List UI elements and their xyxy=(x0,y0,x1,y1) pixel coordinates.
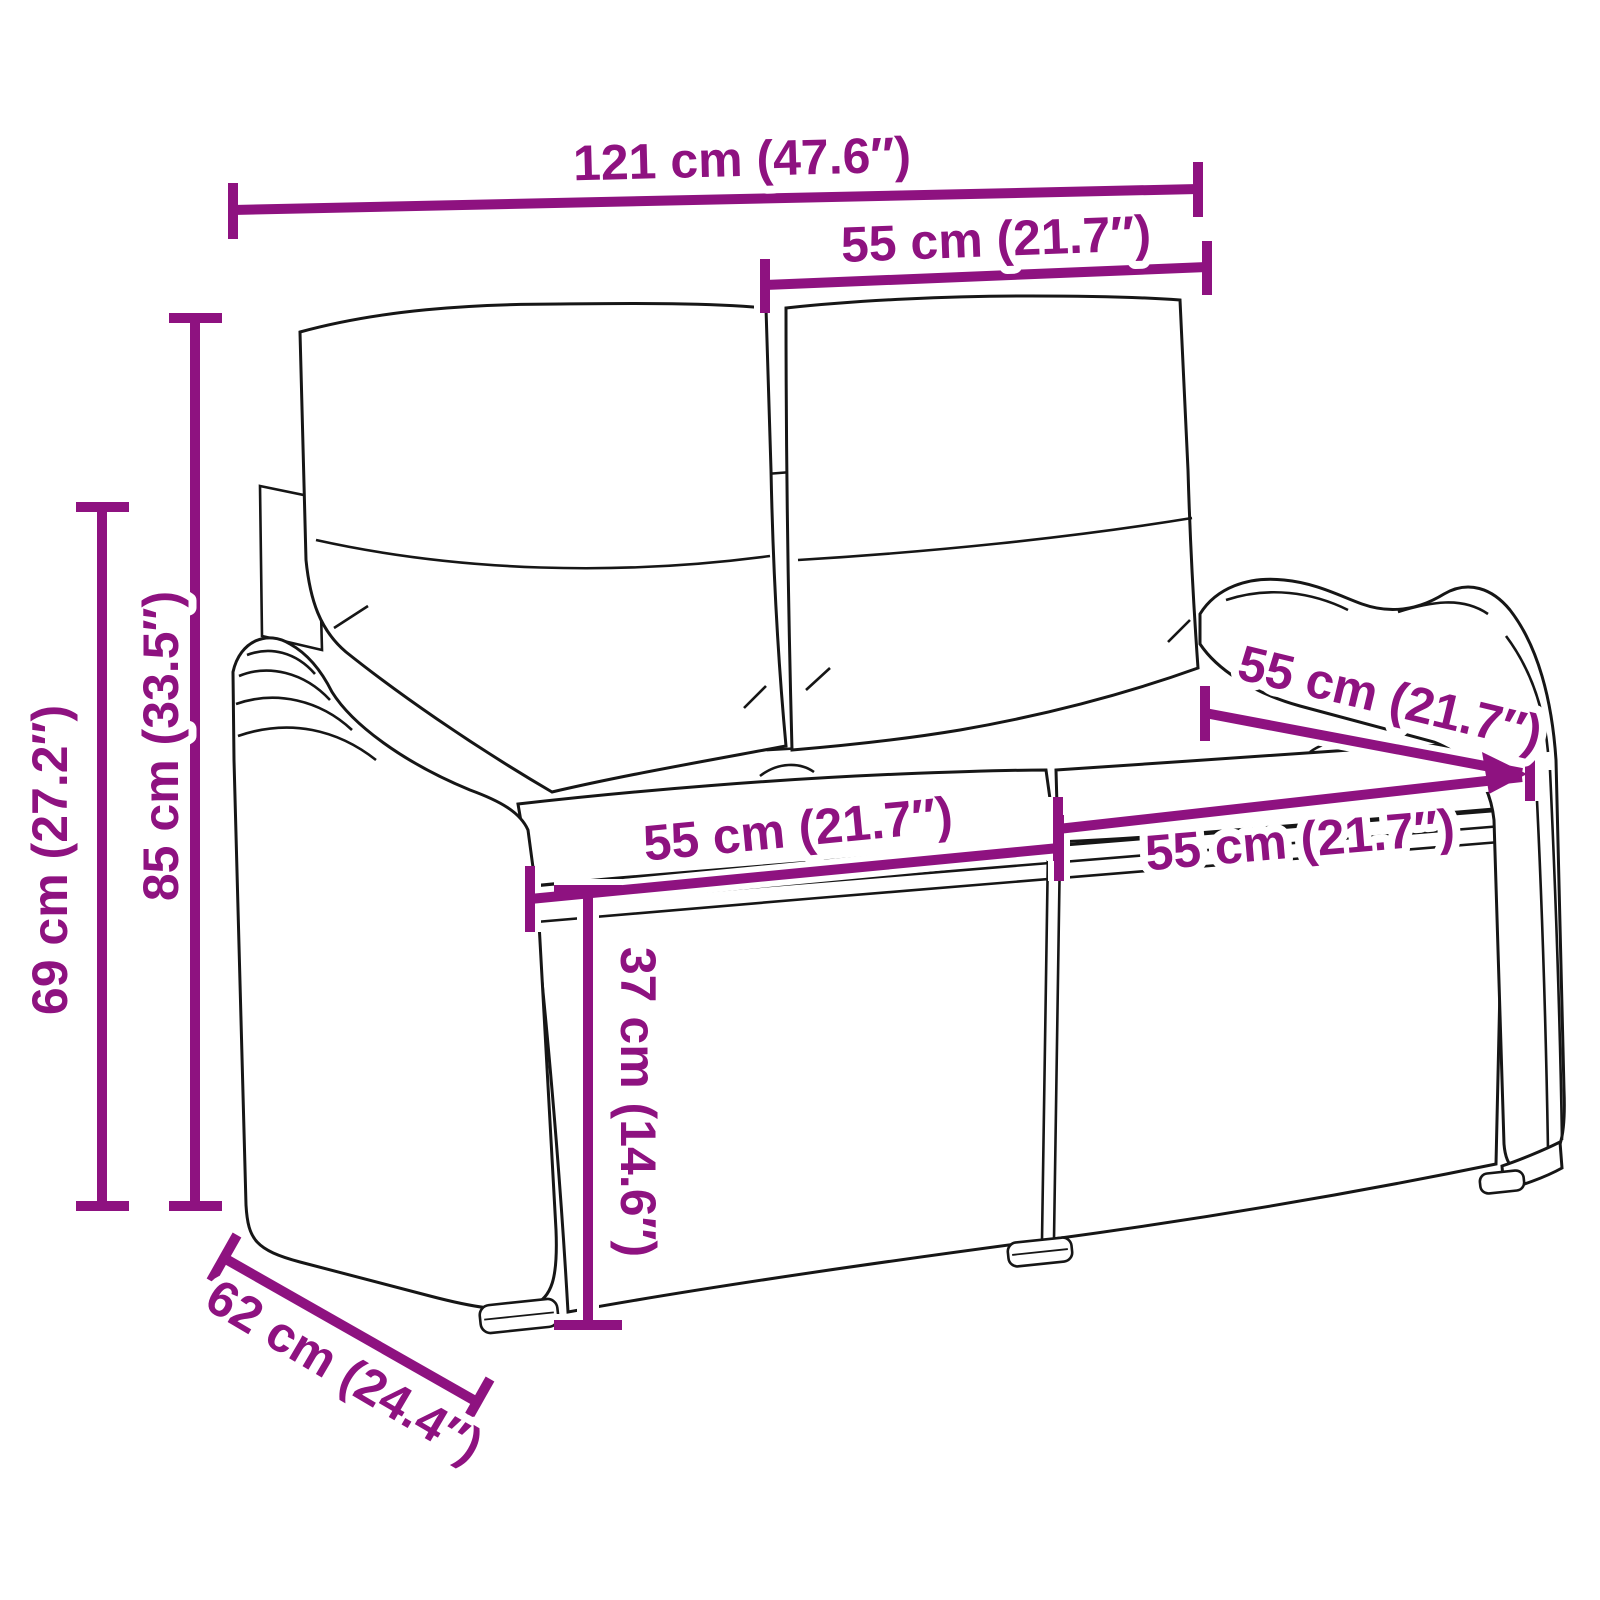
diagram-canvas: 121 cm (47.6″) 55 cm (21.7″) 85 cm (33.5… xyxy=(0,0,1600,1600)
cushion-pucker xyxy=(760,765,814,776)
back-cushion-right xyxy=(786,296,1198,750)
dim-label-back-width: 55 cm (21.7″) xyxy=(840,205,1152,273)
dim-label-total-width: 121 cm (47.6″) xyxy=(572,127,911,192)
foot-right xyxy=(1479,1170,1525,1194)
foot-center xyxy=(1007,1237,1073,1268)
dim-label-seat-height: 37 cm (14.6″) xyxy=(610,947,666,1257)
back-cushion-left xyxy=(300,303,786,792)
product-dimension-diagram: 121 cm (47.6″) 55 cm (21.7″) 85 cm (33.5… xyxy=(0,0,1600,1600)
dim-label-total-height: 85 cm (33.5″) xyxy=(133,591,189,901)
dim-label-arm-height: 69 cm (27.2″) xyxy=(22,705,78,1015)
